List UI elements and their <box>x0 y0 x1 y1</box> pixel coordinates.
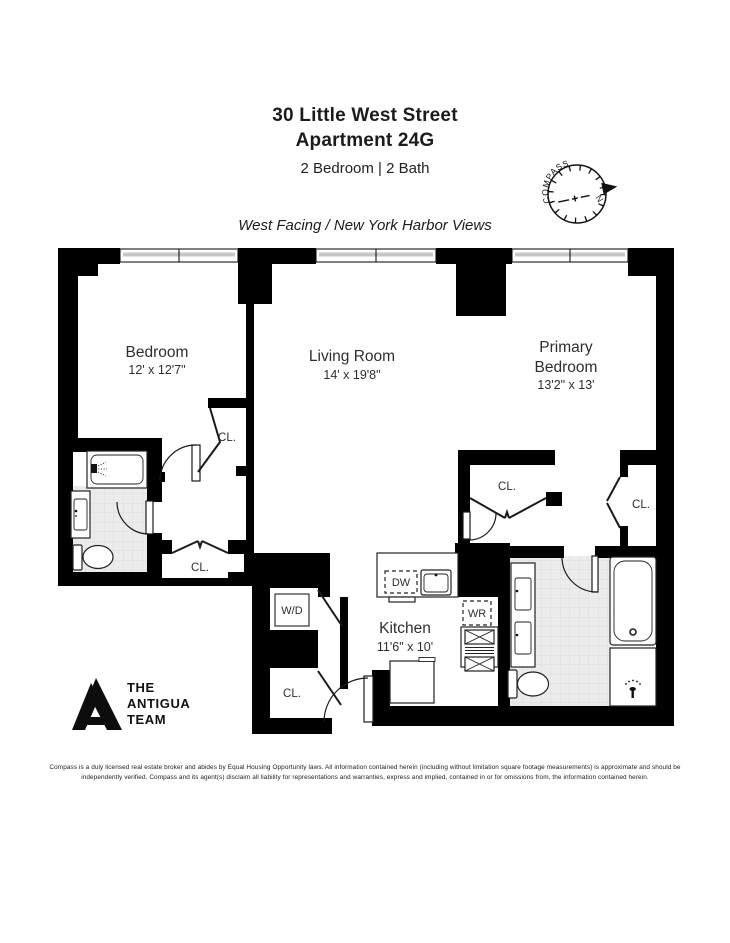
kitchen-sink <box>421 570 451 595</box>
bedroom-closet-label: CL. <box>218 432 236 444</box>
wine-cooler-label: WR <box>468 608 486 620</box>
windows <box>120 249 628 262</box>
bathroom-vanity <box>71 491 90 538</box>
primary-toilet <box>508 670 549 698</box>
logo-line-3: TEAM <box>127 712 166 727</box>
primary-bedroom-label-line1: Primary <box>539 339 593 356</box>
hall-closet-label: CL. <box>191 562 209 574</box>
mid-closet-label: CL. <box>498 481 516 493</box>
dishwasher-label: DW <box>392 577 411 589</box>
bedroom-door <box>160 445 200 481</box>
washer-dryer-label: W/D <box>281 605 302 617</box>
window-primary-bedroom <box>512 249 628 262</box>
antigua-team-logo: THE ANTIGUA TEAM <box>55 655 265 740</box>
living-room-dims: 14' x 19'8" <box>323 368 380 382</box>
primary-bedroom-dims: 13'2" x 13' <box>537 378 594 392</box>
legal-disclaimer: Compass is a duly licensed real estate b… <box>47 763 683 784</box>
living-room-label: Living Room <box>309 348 395 365</box>
entry-closet-label: CL. <box>283 688 301 700</box>
kitchen-label: Kitchen <box>379 620 431 637</box>
hall-closet-doors <box>172 541 228 553</box>
logo-line-1: THE <box>127 680 155 695</box>
primary-bedroom-door <box>463 512 496 540</box>
logo-a-mark <box>72 678 122 730</box>
primary-bedroom-label-line2: Bedroom <box>535 359 598 376</box>
counter-return <box>389 597 415 602</box>
bedroom-label: Bedroom <box>126 344 189 361</box>
primary-closet-label: CL. <box>632 499 650 511</box>
double-vanity <box>511 563 535 667</box>
stove <box>461 627 498 671</box>
entry-door <box>324 676 373 722</box>
floor-plan: Bedroom 12' x 12'7" Living Room 14' x 19… <box>0 0 730 943</box>
window-bedroom <box>120 249 238 262</box>
bedroom-closet-door <box>198 408 220 472</box>
refrigerator <box>390 658 435 704</box>
shower-stall <box>610 648 656 706</box>
primary-closet-door <box>607 477 620 528</box>
mid-closet-doors <box>470 498 546 518</box>
floorplan-page: 30 Little West Street Apartment 24G 2 Be… <box>0 0 730 943</box>
window-living-room <box>316 249 436 262</box>
toilet <box>73 545 113 570</box>
primary-bathtub <box>610 557 656 645</box>
bedroom-dims: 12' x 12'7" <box>128 363 185 377</box>
kitchen-dims: 11'6" x 10' <box>377 640 433 654</box>
logo-line-2: ANTIGUA <box>127 696 190 711</box>
